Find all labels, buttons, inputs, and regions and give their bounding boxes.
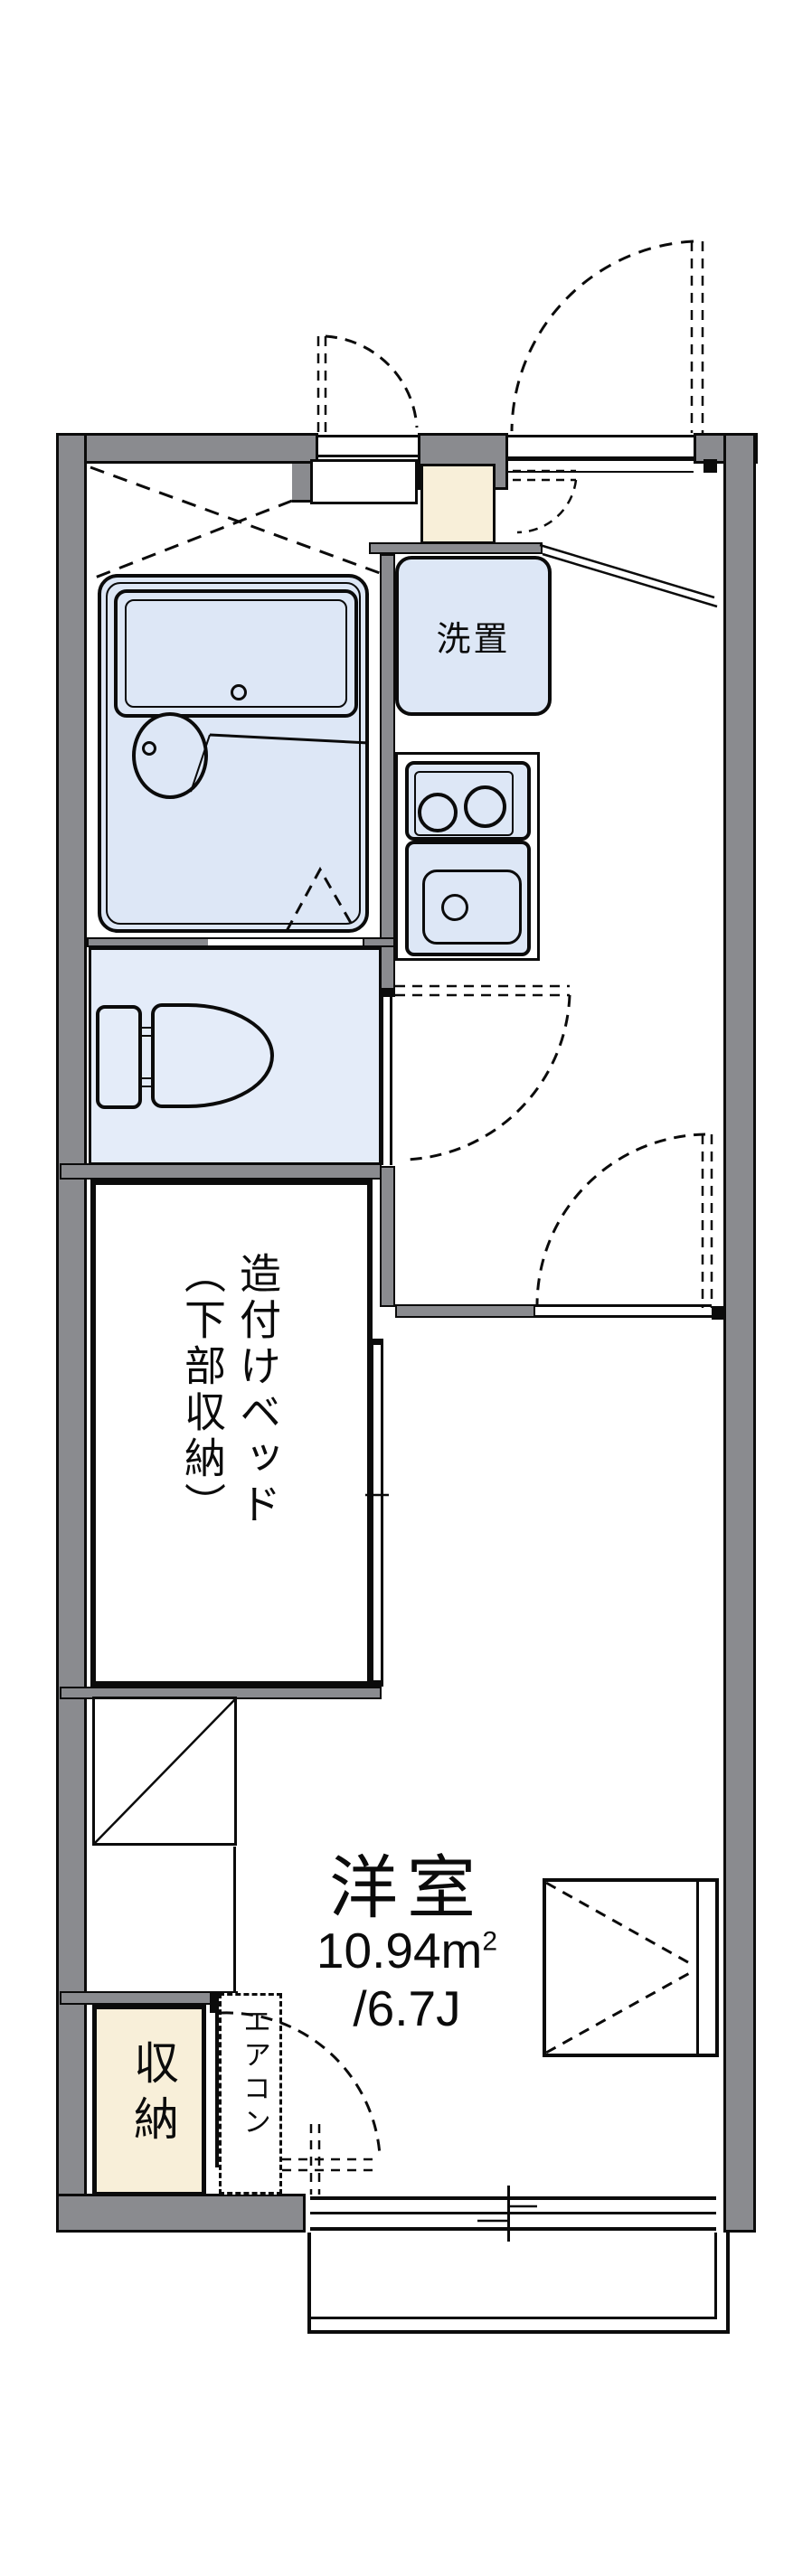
bed-label: 造付けベッド （下部収納） — [175, 1252, 285, 1586]
closet-label: 収納 — [120, 2039, 185, 2151]
aircon-label: エアコン — [234, 2007, 275, 2140]
washer-label: 洗置 — [395, 556, 552, 716]
room-area-value: 10.94m — [316, 1923, 482, 1979]
plan-linework — [0, 0, 812, 2576]
bed-label-col1: 造付けベッド — [230, 1252, 285, 1586]
room-name-label: 洋室 — [271, 1832, 543, 1932]
bed-label-col2: （下部収納） — [175, 1252, 230, 1586]
room-area-jo-label: /6.7J — [226, 1979, 588, 2037]
room-area-sup: 2 — [482, 1927, 497, 1957]
room-area-label: 10.94m2 — [226, 1922, 588, 1979]
floor-plan: 洗置 造付けベッド （下部収納） 洋室 10.94m2 /6.7J 収納 エアコ… — [0, 0, 812, 2576]
